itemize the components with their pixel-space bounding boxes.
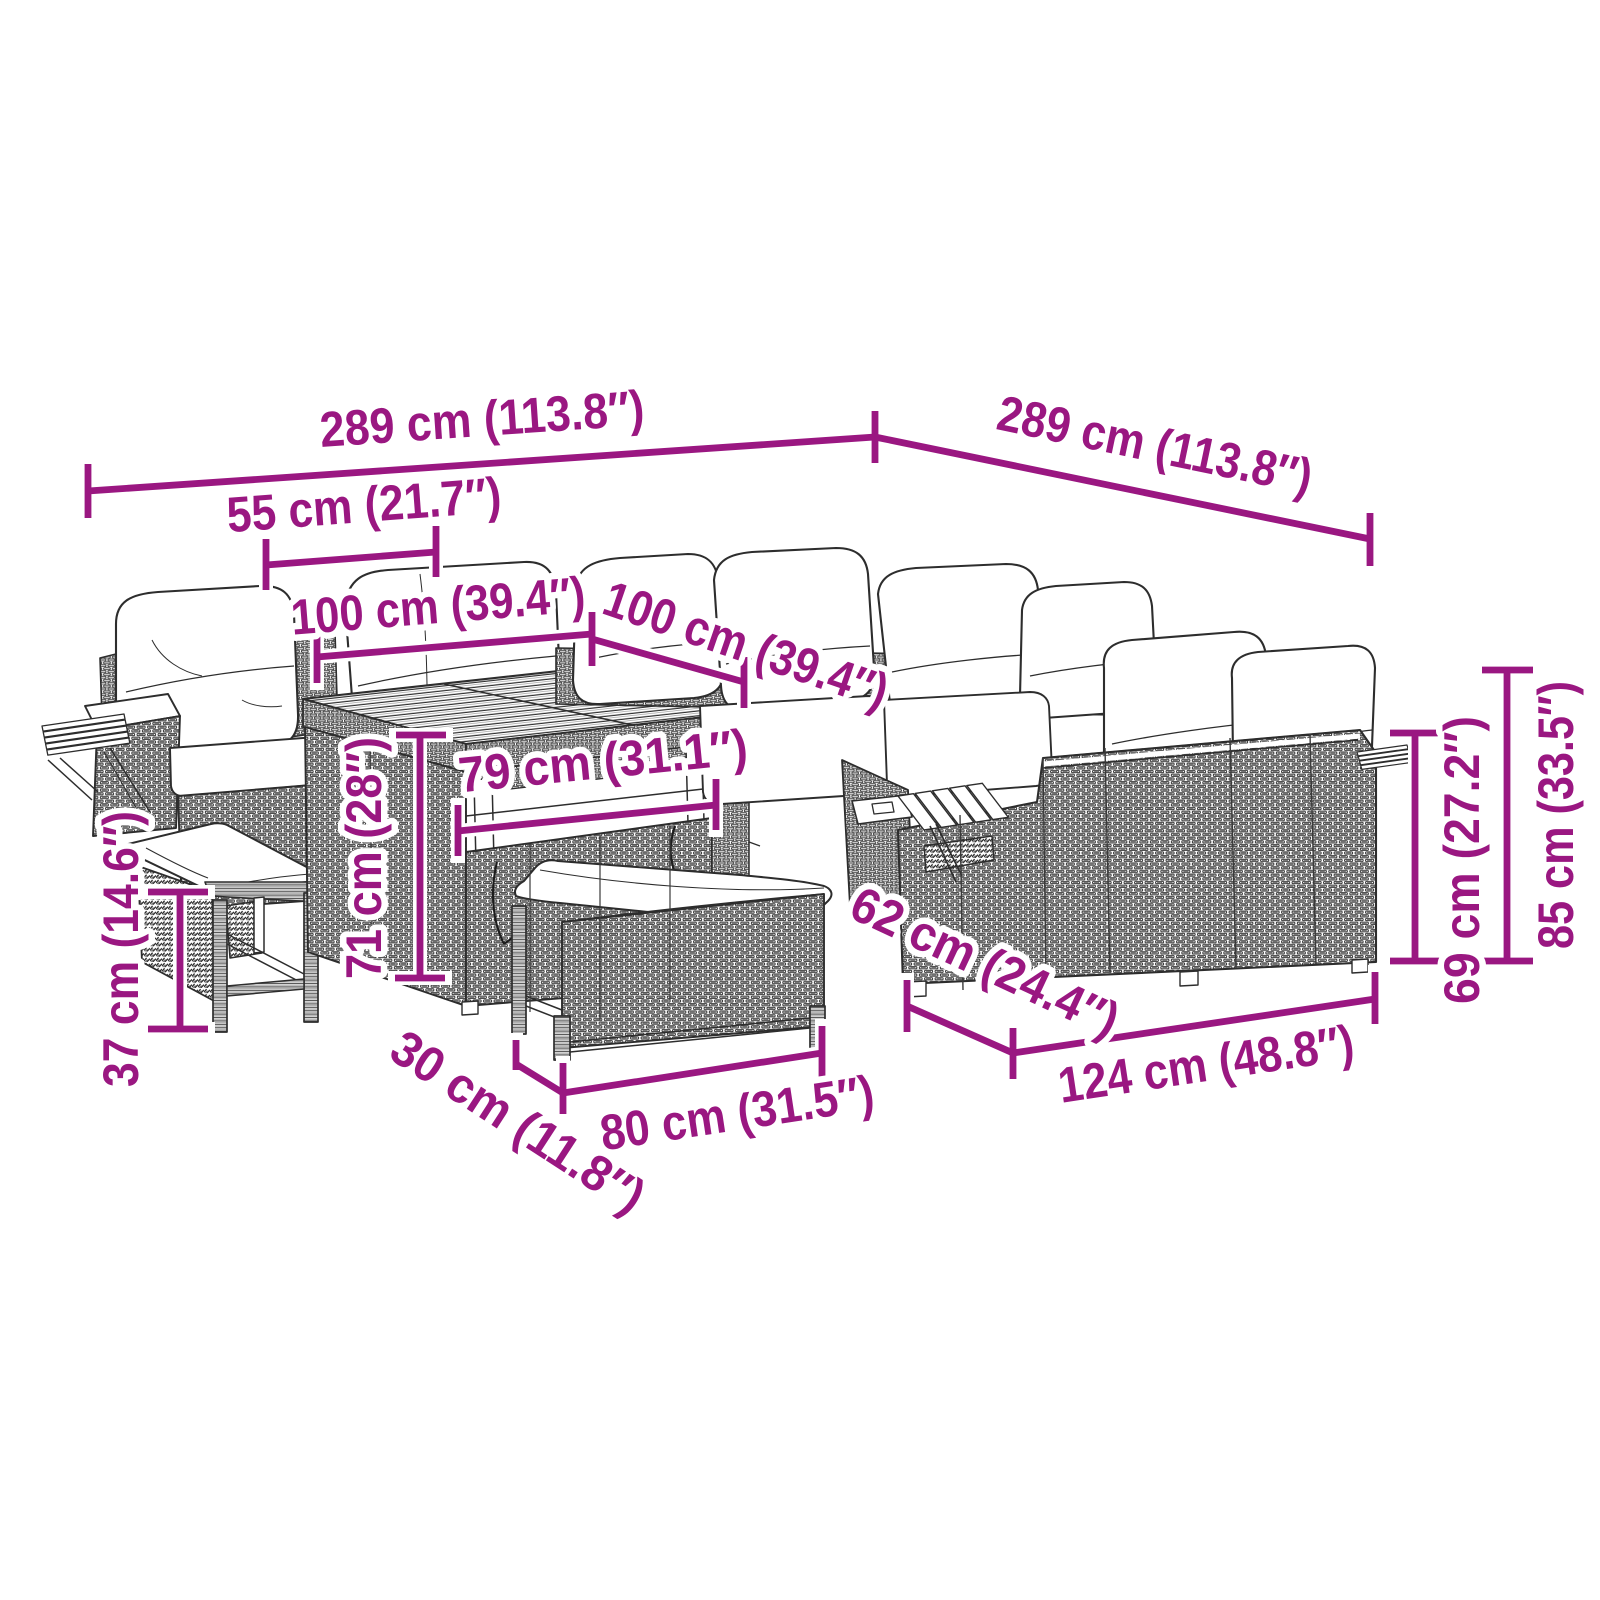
svg-text:71 cm (28″): 71 cm (28″) bbox=[336, 737, 392, 979]
svg-text:69 cm (27.2″): 69 cm (27.2″) bbox=[1434, 716, 1490, 1004]
svg-text:37 cm (14.6″): 37 cm (14.6″) bbox=[93, 811, 149, 1087]
svg-text:85 cm (33.5″): 85 cm (33.5″) bbox=[1528, 681, 1584, 949]
